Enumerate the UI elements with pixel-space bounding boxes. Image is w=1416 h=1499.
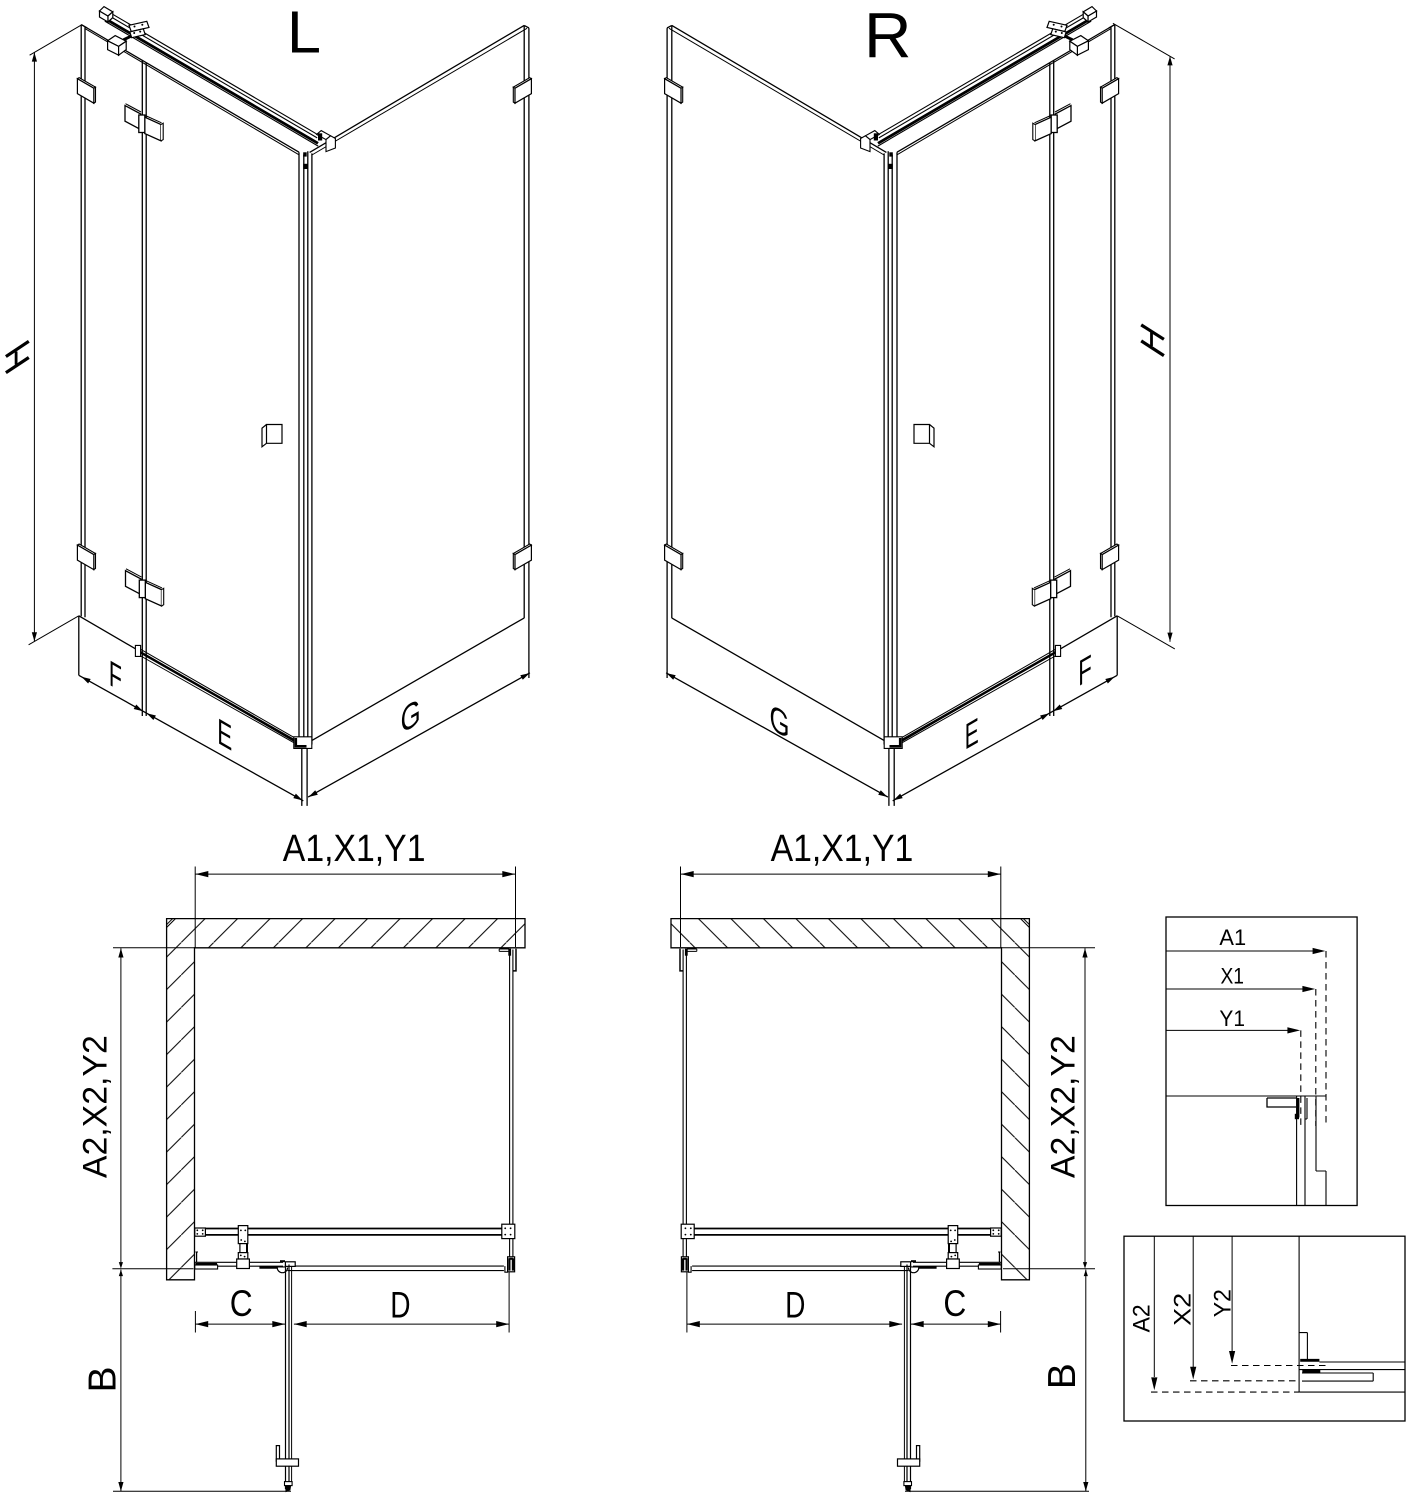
svg-text:F: F [109,653,122,700]
svg-text:A1,X1,Y1: A1,X1,Y1 [283,828,426,870]
svg-text:A2,X2,Y2: A2,X2,Y2 [76,1035,114,1178]
svg-text:X2: X2 [1170,1293,1197,1326]
svg-text:D: D [390,1284,410,1325]
svg-text:D: D [785,1284,805,1325]
svg-text:A2,X2,Y2: A2,X2,Y2 [1045,1035,1083,1178]
svg-text:A1: A1 [1219,925,1246,950]
svg-text:C: C [943,1283,966,1324]
svg-text:Y1: Y1 [1219,1006,1245,1031]
svg-text:B: B [81,1367,124,1393]
svg-text:R: R [864,0,912,72]
svg-text:L: L [287,0,321,66]
svg-text:X1: X1 [1221,963,1245,988]
svg-text:Y2: Y2 [1210,1289,1237,1317]
svg-text:A2: A2 [1129,1304,1156,1332]
svg-text:E: E [965,710,979,758]
svg-text:A1,X1,Y1: A1,X1,Y1 [771,828,914,870]
svg-text:F: F [1078,647,1092,695]
svg-text:C: C [230,1283,253,1324]
svg-text:B: B [1041,1363,1084,1389]
